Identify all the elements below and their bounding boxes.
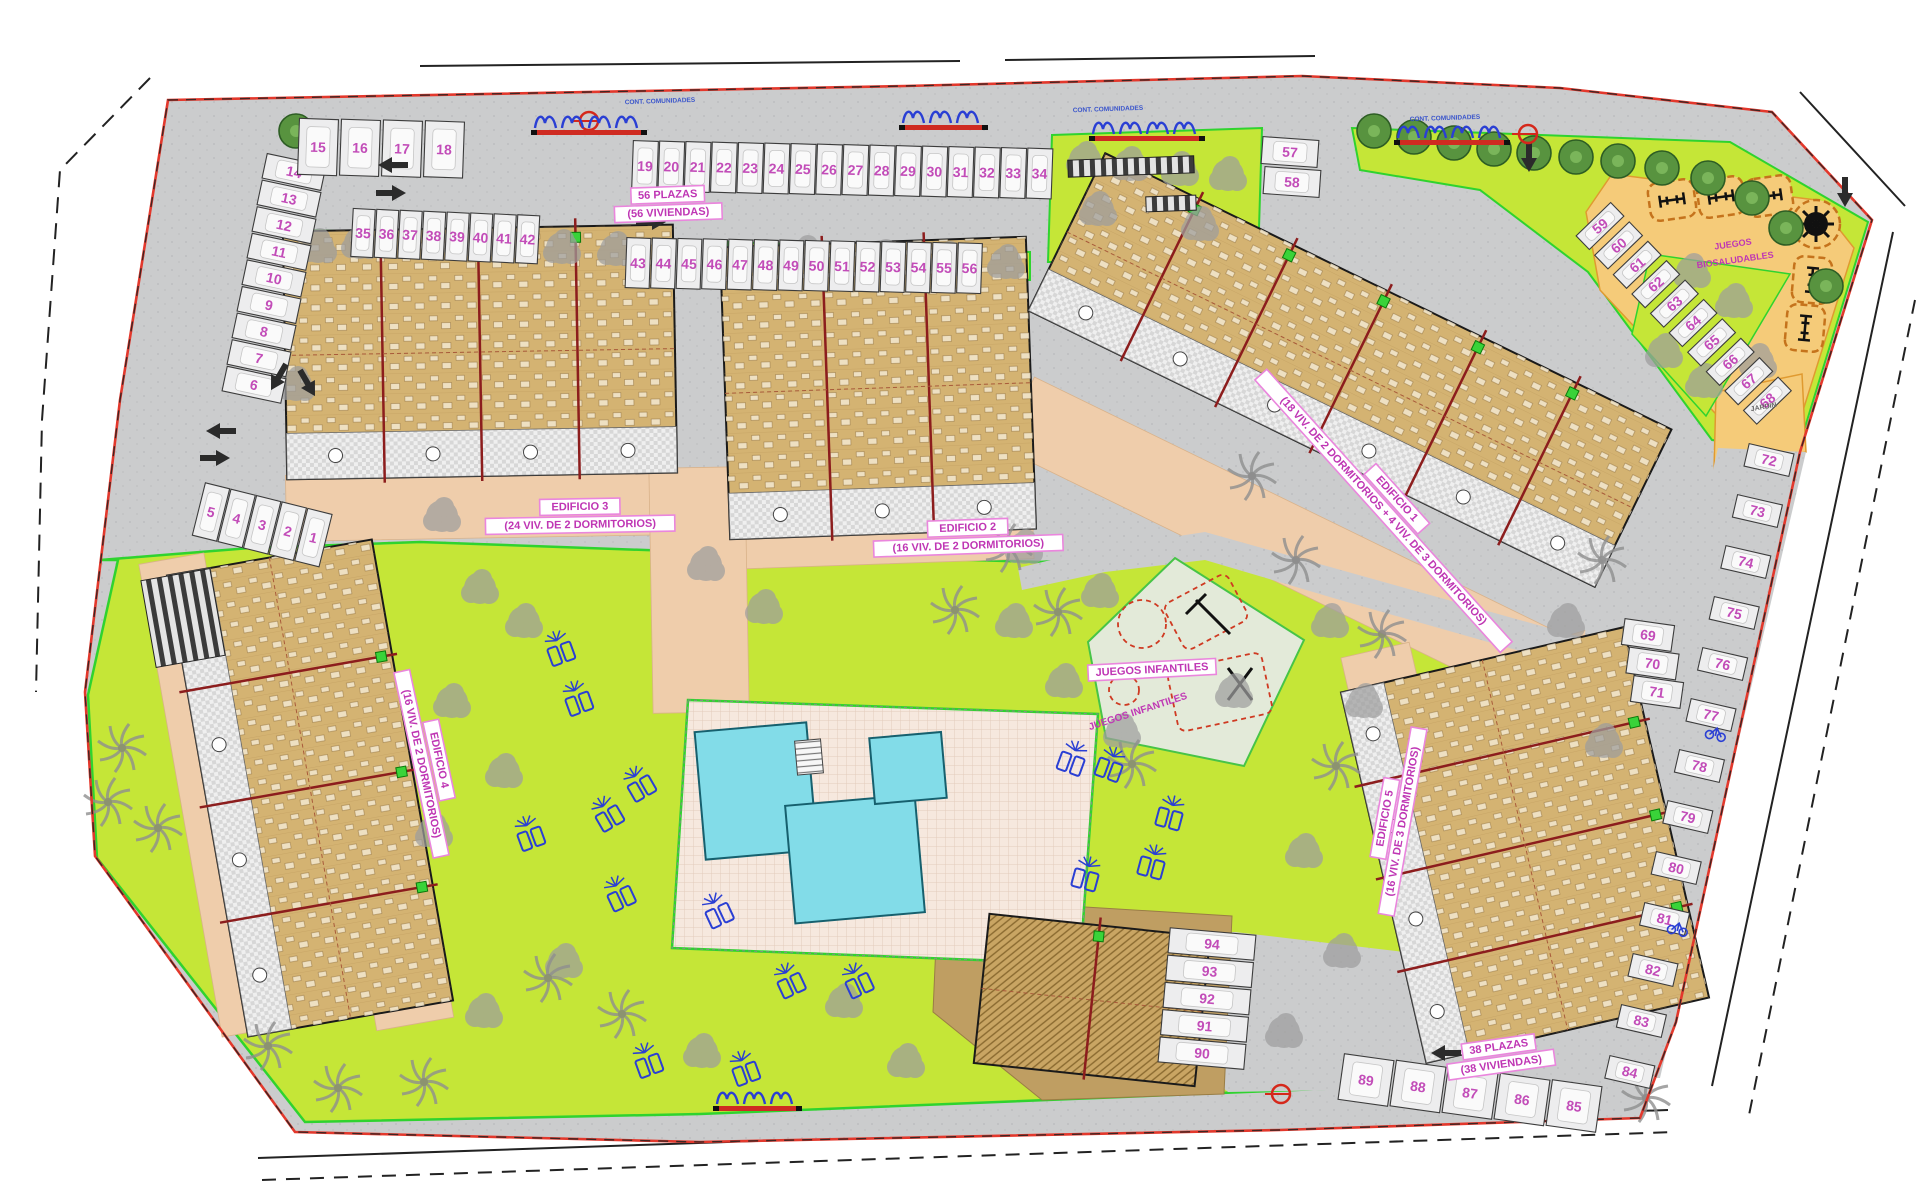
parking-stall-85: 85 [1546,1080,1602,1133]
parking-stall-27: 27 [842,145,869,196]
parking-number: 17 [394,140,410,157]
parking-stall-88: 88 [1390,1060,1446,1113]
parking-stall-49: 49 [778,240,804,291]
parking-number: 69 [1639,626,1657,644]
elevator [1650,809,1662,821]
parking-number: 50 [808,258,824,275]
parking-number: 26 [821,161,837,178]
parking-number: 88 [1409,1077,1427,1095]
parking-stall-89: 89 [1338,1054,1394,1107]
parking-number: 53 [885,259,901,276]
elevator [396,766,408,778]
elevator [1093,931,1104,942]
parking-stall-46: 46 [702,239,728,290]
parking-stall-41: 41 [492,214,516,263]
parking-stall-26: 26 [816,144,843,195]
label-text: EDIFICIO 2 [939,521,996,535]
parking-stall-20: 20 [658,141,685,192]
parking-stall-30: 30 [921,146,948,197]
parking-stall-34: 34 [1026,148,1053,199]
fitness-station [1784,303,1826,352]
dark-tree [1645,151,1679,185]
dark-tree [1559,140,1593,174]
terrace-table [977,500,991,514]
road-line [420,61,960,66]
parking-number: 56 [961,260,977,277]
road-line [262,1132,1676,1180]
parking-number: 39 [449,228,466,245]
parking-number: 19 [637,158,653,175]
parking-number: 57 [1282,143,1299,160]
elevator [375,651,387,663]
parking-number: 15 [310,139,326,156]
parking-stall-43: 43 [625,238,651,289]
parking-number: 47 [732,256,748,273]
parking-stall-55: 55 [931,242,957,293]
parking-number: 93 [1201,963,1218,980]
elevator [416,881,428,893]
site-plan-drawing: 1413121110987654321151617181920212223242… [0,0,1920,1185]
parking-stall-29: 29 [895,146,922,197]
parking-number: 87 [1461,1084,1479,1102]
terrace-table [426,447,440,461]
parking-number: 43 [630,255,646,272]
parking-number: 35 [355,225,372,242]
parking-stall-28: 28 [868,145,895,196]
road-line [1005,56,1315,60]
parking-number: 86 [1513,1090,1531,1108]
parking-number: 20 [663,158,679,175]
terrace-table [523,445,537,459]
parking-number: 18 [436,141,452,158]
parking-number: 48 [757,257,773,274]
terrace-table [328,448,342,462]
pergola [1146,195,1196,212]
elevator [1628,716,1640,728]
terrace-table [773,507,787,521]
parking-stall-56: 56 [957,243,983,294]
parking-number: 16 [352,140,368,157]
parking-number: 23 [742,160,758,177]
terrace-table [621,443,635,457]
parking-stall-24: 24 [763,143,790,194]
dark-tree [1357,114,1391,148]
parking-stall-32: 32 [974,147,1001,198]
parking-stall-48: 48 [753,240,779,291]
parking-stall-16: 16 [340,119,381,176]
parking-number: 25 [795,161,811,178]
parking-stall-19: 19 [632,141,659,192]
pool [785,795,925,924]
label-text: 56 PLAZAS [638,188,698,202]
parking-stall-21: 21 [684,142,711,193]
parking-number: 32 [979,164,995,181]
terrace-table [875,504,889,518]
parking-number: 85 [1565,1097,1583,1115]
parking-stall-53: 53 [880,242,906,293]
parking-stall-54: 54 [906,242,932,293]
parking-number: 71 [1648,683,1666,701]
dark-tree [1691,161,1725,195]
parking-stall-33: 33 [1000,148,1027,199]
parking-stall-44: 44 [651,238,677,289]
parking-stall-23: 23 [737,143,764,194]
dark-tree [1735,181,1769,215]
parking-number: 37 [402,226,419,243]
dark-tree [1477,132,1511,166]
label-text: EDIFICIO 3 [551,501,608,514]
parking-number: 91 [1196,1017,1213,1034]
parking-stall-47: 47 [727,239,753,290]
parking-stall-18: 18 [424,121,465,178]
parking-number: 22 [716,159,732,176]
spinner-icon [1798,206,1834,242]
parking-number: 94 [1204,935,1221,952]
parking-stall-52: 52 [855,241,881,292]
parking-number: 27 [847,162,863,179]
parking-number: 30 [926,163,942,180]
parking-number: 89 [1357,1071,1375,1089]
parking-stall-57: 57 [1261,137,1319,168]
parking-stall-22: 22 [711,142,738,193]
dark-tree [1769,211,1803,245]
pergola [141,569,225,668]
dark-tree [1601,144,1635,178]
parking-number: 38 [425,227,442,244]
dark-tree [1809,269,1843,303]
parking-number: 36 [378,226,395,243]
parking-number: 21 [690,159,706,176]
parking-stall-58: 58 [1263,167,1321,198]
parking-number: 54 [910,259,926,276]
parking-stall-42: 42 [515,215,539,264]
pool [869,732,946,804]
parking-stall-45: 45 [676,238,702,289]
parking-stall-31: 31 [947,147,974,198]
parking-stall-25: 25 [789,144,816,195]
parking-stall-15: 15 [298,118,339,175]
site-plan-page: 1413121110987654321151617181920212223242… [0,0,1920,1185]
parking-stall-50: 50 [804,240,830,291]
parking-stall-38: 38 [421,211,445,260]
pool-stairs [795,739,824,775]
parking-stall-40: 40 [468,213,492,262]
parking-number: 40 [472,229,489,246]
parking-number: 51 [834,258,850,275]
parking-number: 44 [655,255,671,272]
parking-number: 34 [1031,165,1047,182]
parking-number: 58 [1284,173,1301,190]
parking-stall-51: 51 [829,241,855,292]
parking-number: 90 [1194,1045,1211,1062]
parking-stall-36: 36 [374,209,398,258]
parking-number: 29 [900,163,916,180]
parking-number: 92 [1199,990,1216,1007]
parking-number: 49 [783,257,799,274]
parking-number: 28 [874,162,890,179]
parking-number: 42 [519,231,536,248]
parking-stall-39: 39 [445,212,469,261]
parking-stall-86: 86 [1494,1073,1550,1126]
parking-stall-37: 37 [398,210,422,259]
parking-number: 70 [1644,654,1662,672]
fitness-station [1647,178,1698,222]
parking-number: 55 [936,260,952,277]
parking-number: 41 [496,230,513,247]
parking-number: 31 [953,164,969,181]
parking-stall-35: 35 [351,208,375,257]
parking-number: 52 [859,258,875,275]
parking-number: 24 [768,160,784,177]
parking-number: 45 [681,256,697,273]
parking-number: 33 [1005,165,1021,182]
parking-number: 46 [706,256,722,273]
